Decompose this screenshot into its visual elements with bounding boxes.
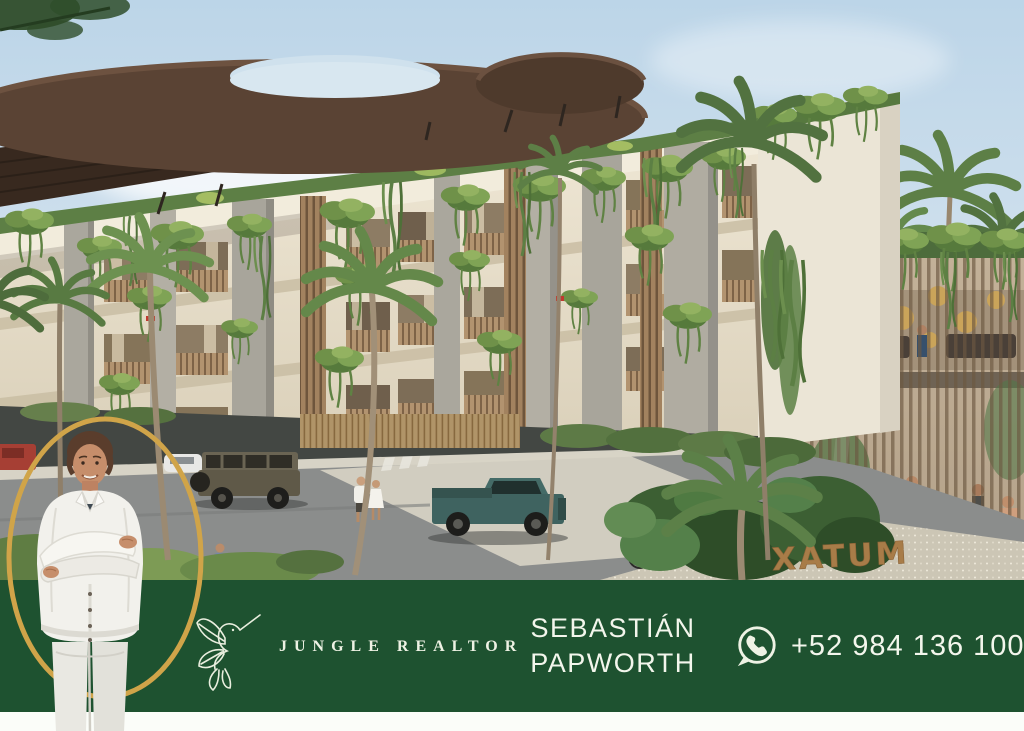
realtor-portrait [26,412,186,731]
real-estate-flyer: XATUM [0,0,1024,731]
whatsapp-icon [733,623,779,669]
bamboo-fence [300,414,520,448]
agent-name: SEBASTIÁN PAPWORTH [498,580,728,712]
suv [190,452,308,510]
agent-last-name: PAPWORTH [530,646,696,681]
white-tower [752,86,900,448]
agent-first-name: SEBASTIÁN [530,611,695,646]
contact-block: +52 984 136 1005 [733,580,1024,712]
phone-number: +52 984 136 1005 [791,630,1024,663]
brand-lockup: JUNGLE REALTOR [193,602,523,692]
brand-name: JUNGLE REALTOR [279,638,523,656]
project-sign-text: XATUM [771,535,910,578]
